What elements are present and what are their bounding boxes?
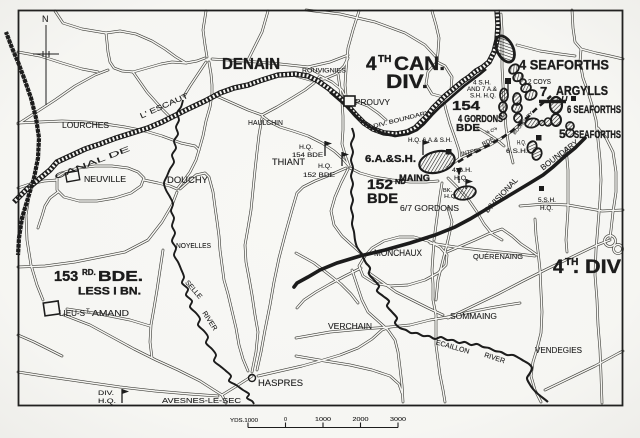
svg-text:DOUCHY: DOUCHY (167, 175, 208, 185)
svg-text:PROUVY: PROUVY (355, 97, 390, 107)
svg-text:H.Q.: H.Q. (98, 398, 116, 405)
svg-text:4 SEAFORTHS: 4 SEAFORTHS (519, 57, 609, 73)
svg-text:SEAFORTHS: SEAFORTHS (574, 129, 621, 141)
svg-text:AND 7 A.&: AND 7 A.& (467, 87, 497, 93)
svg-text:4.G.H.: 4.G.H. (452, 168, 472, 174)
svg-text:N: N (42, 14, 49, 24)
svg-text:HASPRES: HASPRES (258, 378, 303, 389)
svg-text:152: 152 (367, 177, 393, 192)
svg-text:2000: 2000 (353, 417, 369, 423)
svg-text:YDS.1000: YDS.1000 (230, 418, 258, 424)
svg-text:3000: 3000 (390, 417, 406, 423)
svg-text:H.Q.: H.Q. (540, 206, 553, 212)
svg-text:. DIV: . DIV (573, 257, 621, 278)
svg-text:153: 153 (54, 269, 78, 285)
svg-text:TH: TH (378, 54, 391, 65)
svg-text:6 SEAFORTHS: 6 SEAFORTHS (567, 104, 621, 116)
svg-text:H.Q.: H.Q. (517, 141, 526, 147)
svg-text:4: 4 (366, 54, 377, 75)
svg-text:H.Q.: H.Q. (444, 194, 459, 200)
svg-text:6.A.&S.H.: 6.A.&S.H. (365, 153, 416, 165)
svg-text:DIV.: DIV. (386, 72, 428, 93)
svg-text:LESS I BN.: LESS I BN. (78, 286, 141, 298)
svg-text:HAULCHIN: HAULCHIN (248, 118, 283, 127)
svg-text:H.Q. 6.A.& S.H.: H.Q. 6.A.& S.H. (408, 137, 452, 144)
svg-text:VERCHAIN: VERCHAIN (328, 321, 372, 331)
svg-text:AMAND: AMAND (92, 308, 129, 318)
svg-text:7: 7 (540, 84, 547, 99)
svg-text:0: 0 (284, 417, 287, 423)
svg-text:4 S.H.: 4 S.H. (473, 81, 491, 87)
svg-text:ROUVIGNIES: ROUVIGNIES (302, 69, 346, 75)
svg-text:154 BDE: 154 BDE (292, 153, 323, 159)
svg-text:LIEU-S: LIEU-S (59, 308, 85, 318)
svg-text:ARGYLLS: ARGYLLS (556, 83, 608, 98)
svg-text:H.Q.: H.Q. (299, 145, 313, 151)
svg-text:6.S.H.: 6.S.H. (506, 148, 528, 155)
svg-text:S.H. H.Q.: S.H. H.Q. (470, 94, 496, 100)
svg-text:RD.: RD. (82, 268, 96, 277)
svg-text:DIV.: DIV. (98, 390, 114, 397)
svg-text:BDE.: BDE. (98, 269, 143, 285)
svg-text:NEUVILLE: NEUVILLE (84, 175, 126, 184)
svg-text:5.S.H.: 5.S.H. (538, 198, 556, 204)
svg-text:BDE: BDE (367, 191, 398, 206)
svg-text:SOMMAING: SOMMAING (450, 311, 497, 321)
svg-text:6/7 GORDONS: 6/7 GORDONS (400, 203, 459, 213)
svg-text:T.: T. (86, 309, 91, 315)
svg-text:154: 154 (452, 98, 481, 113)
svg-text:QUÉRÉNAING: QUÉRÉNAING (473, 252, 523, 261)
svg-text:AVESNES-LE-SEC: AVESNES-LE-SEC (162, 396, 242, 405)
svg-text:LOURCHES: LOURCHES (62, 121, 109, 130)
svg-text:NOYELLES: NOYELLES (176, 241, 211, 250)
svg-text:MONCHAUX: MONCHAUX (374, 248, 422, 258)
svg-text:DENAIN: DENAIN (222, 56, 280, 73)
svg-text:BDE: BDE (456, 122, 480, 134)
svg-text:H.Q.: H.Q. (454, 176, 468, 182)
svg-text:H.Q.: H.Q. (318, 164, 332, 170)
svg-text:ND: ND (395, 177, 406, 186)
svg-text:1000: 1000 (315, 417, 331, 423)
svg-text:4: 4 (553, 257, 564, 278)
svg-text:5: 5 (559, 127, 566, 141)
svg-text:VENDEGIES: VENDEGIES (535, 346, 582, 355)
svg-text:152 BDE: 152 BDE (303, 173, 335, 179)
